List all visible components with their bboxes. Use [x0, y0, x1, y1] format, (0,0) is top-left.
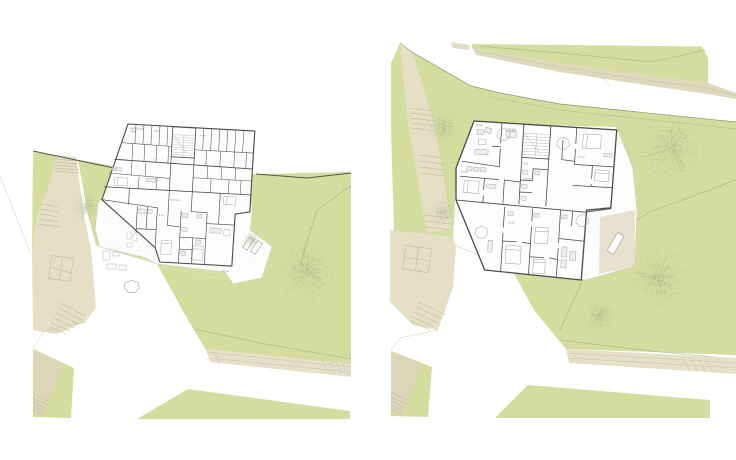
svg-text:12.6m: 12.6m	[199, 135, 205, 137]
svg-text:91 m2: 91 m2	[476, 123, 484, 127]
svg-text:12.6m: 12.6m	[154, 130, 160, 132]
svg-text:1:0000: 1:0000	[129, 131, 137, 133]
svg-text:30 m2: 30 m2	[222, 270, 229, 273]
svg-text:16 m2: 16 m2	[461, 170, 468, 173]
svg-text:14 m2: 14 m2	[578, 156, 585, 159]
svg-text:5.1m: 5.1m	[159, 215, 164, 217]
svg-text:16 m2: 16 m2	[111, 168, 118, 170]
svg-text:13 m2: 13 m2	[508, 221, 515, 224]
svg-text:SUP 127m2: SUP 127m2	[130, 126, 145, 131]
